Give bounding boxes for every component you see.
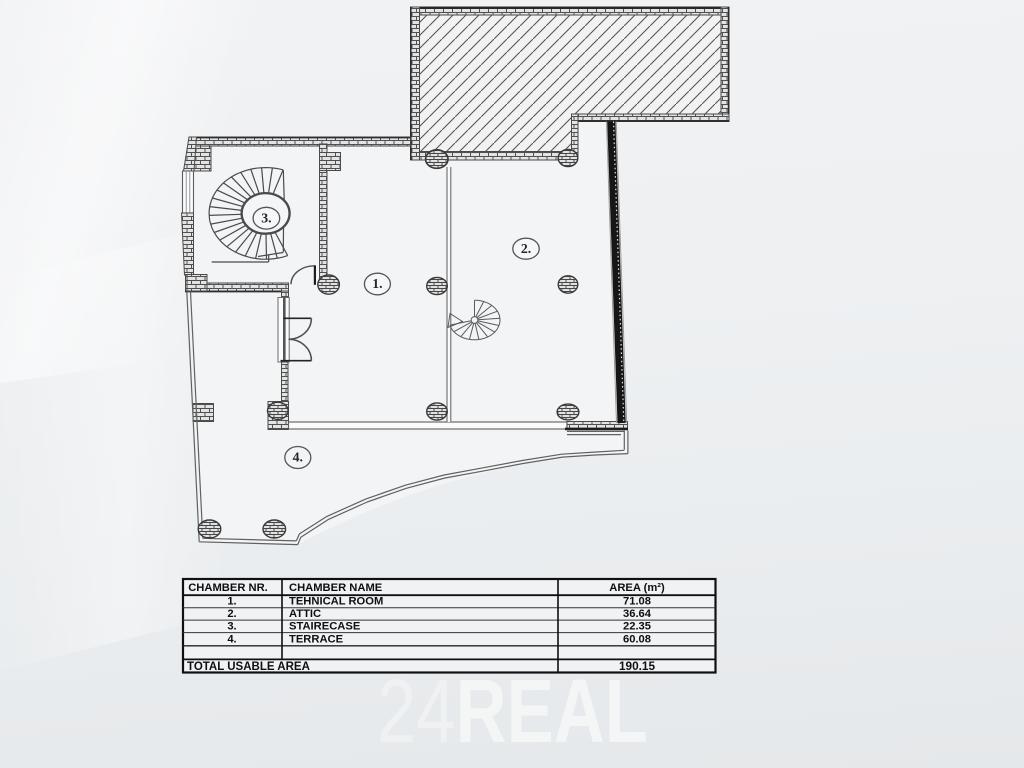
- svg-text:60.08: 60.08: [623, 634, 651, 646]
- svg-text:71.08: 71.08: [623, 596, 651, 608]
- svg-text:4.: 4.: [227, 634, 236, 646]
- svg-text:36.64: 36.64: [623, 608, 652, 620]
- svg-text:3.: 3.: [227, 621, 236, 633]
- svg-text:TOTAL USABLE AREA: TOTAL USABLE AREA: [187, 661, 310, 673]
- svg-text:22.35: 22.35: [623, 621, 651, 633]
- svg-text:4.: 4.: [293, 450, 303, 465]
- svg-text:TERRACE: TERRACE: [289, 634, 344, 646]
- svg-text:AREA (m²): AREA (m²): [609, 582, 665, 594]
- svg-text:TEHNICAL ROOM: TEHNICAL ROOM: [289, 596, 383, 608]
- svg-text:CHAMBER NAME: CHAMBER NAME: [289, 582, 383, 594]
- svg-text:3.: 3.: [261, 210, 271, 225]
- svg-text:STAIRECASE: STAIRECASE: [289, 621, 361, 633]
- svg-text:ATTIC: ATTIC: [289, 608, 321, 620]
- svg-text:190.15: 190.15: [619, 659, 656, 673]
- svg-text:2.: 2.: [521, 241, 531, 256]
- svg-text:2.: 2.: [227, 608, 236, 620]
- svg-text:1.: 1.: [372, 276, 382, 291]
- svg-text:1.: 1.: [227, 596, 236, 608]
- svg-text:CHAMBER NR.: CHAMBER NR.: [188, 582, 268, 594]
